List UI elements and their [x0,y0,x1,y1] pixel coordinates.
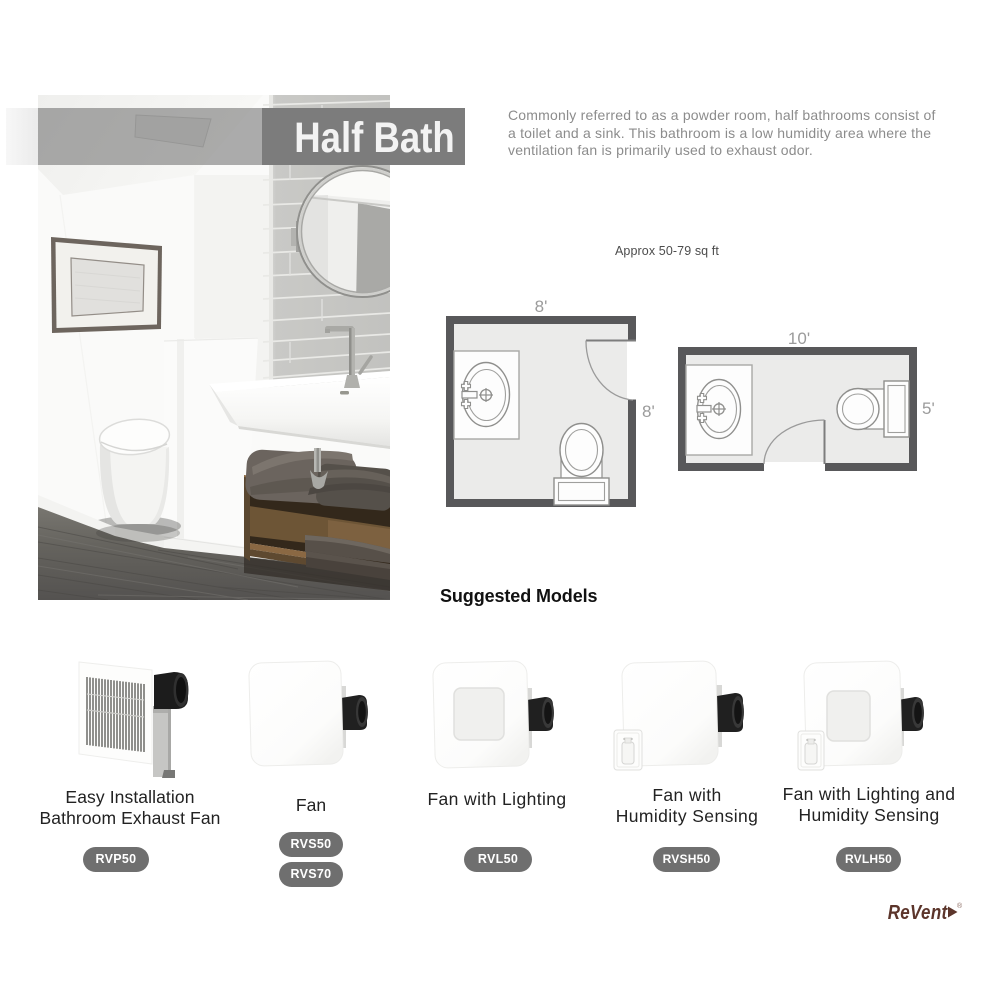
svg-text:8': 8' [642,402,655,421]
svg-text:8': 8' [535,297,548,316]
svg-text:5': 5' [922,399,935,418]
svg-text:10': 10' [788,329,810,348]
svg-text:®: ® [957,902,963,910]
svg-text:ReVent: ReVent [888,901,948,924]
